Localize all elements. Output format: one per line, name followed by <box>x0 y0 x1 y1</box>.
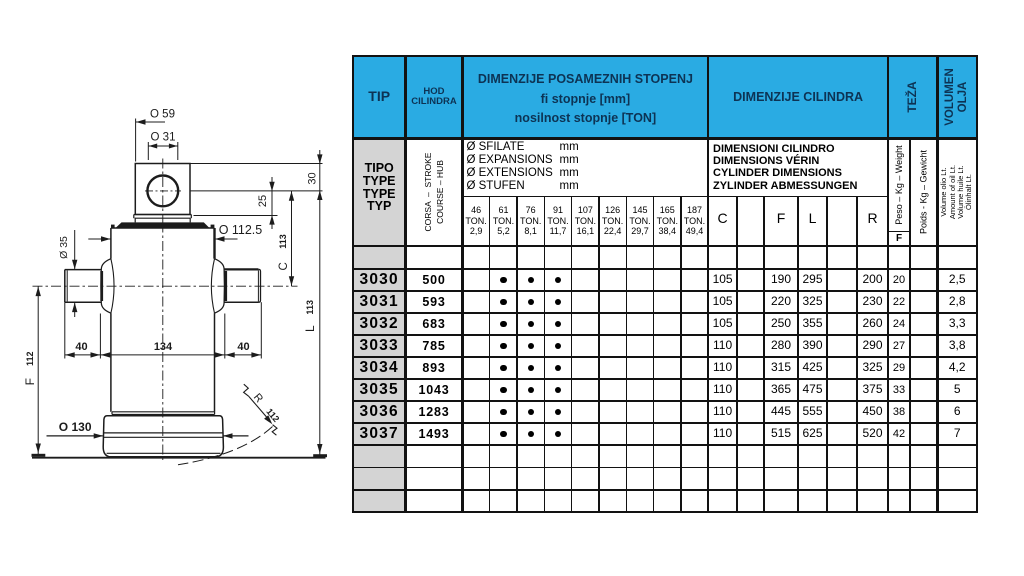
svg-text:112: 112 <box>264 406 281 424</box>
svg-text:25: 25 <box>257 195 269 207</box>
svg-text:113: 113 <box>278 234 288 249</box>
svg-text:C: C <box>278 262 290 270</box>
svg-text:40: 40 <box>237 341 249 353</box>
svg-text:112: 112 <box>25 351 35 366</box>
svg-text:113: 113 <box>305 300 315 315</box>
svg-text:F: F <box>23 378 37 385</box>
svg-text:O 112.5: O 112.5 <box>219 223 263 237</box>
svg-text:L: L <box>303 325 317 332</box>
svg-text:R: R <box>251 391 265 405</box>
svg-text:Ø 35: Ø 35 <box>58 236 70 259</box>
svg-text:134: 134 <box>154 341 173 353</box>
svg-text:O 130: O 130 <box>59 420 92 434</box>
svg-text:O 59: O 59 <box>150 109 175 121</box>
svg-text:30: 30 <box>306 172 318 184</box>
svg-text:40: 40 <box>75 341 87 353</box>
svg-text:O 31: O 31 <box>151 132 176 144</box>
